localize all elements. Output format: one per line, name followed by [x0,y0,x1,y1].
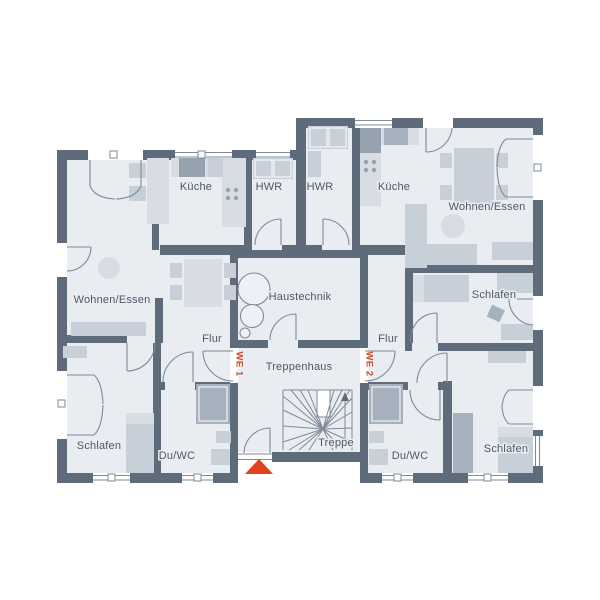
unit-label-we1: WE 1 [234,351,245,376]
room-label-flur-we1: Flur [202,333,222,345]
hwr-appliances-we1 [253,158,293,179]
unit-label-we2: WE 2 [364,351,375,376]
room-label-schlafen-we1: Schlafen [77,440,121,452]
room-label-treppenhaus: Treppenhaus [266,361,333,373]
room-label-haustechnik: Haustechnik [269,291,332,303]
room-label-schlafen-mid-we2: Schlafen [472,289,516,301]
room-label-hwr-we1: HWR [256,181,283,193]
room-label-schlafen-we2: Schlafen [484,443,528,455]
bedroom-we1 [126,413,154,473]
room-label-duwc-we2: Du/WC [392,450,428,462]
room-label-treppe: Treppe [318,437,354,449]
room-label-flur-we2: Flur [378,333,398,345]
room-label-hwr-we2: HWR [307,181,334,193]
room-label-kueche-we1: Küche [180,181,212,193]
floor-plan-canvas: Küche HWR HWR Küche Wohnen/Essen Wohnen/… [0,0,600,600]
room-label-duwc-we1: Du/WC [159,450,195,462]
room-label-wohnen-we2: Wohnen/Essen [449,201,526,213]
room-label-wohnen-we1: Wohnen/Essen [74,294,151,306]
floor-plan-svg: Küche HWR HWR Küche Wohnen/Essen Wohnen/… [0,0,600,600]
room-label-kueche-we2: Küche [378,181,410,193]
